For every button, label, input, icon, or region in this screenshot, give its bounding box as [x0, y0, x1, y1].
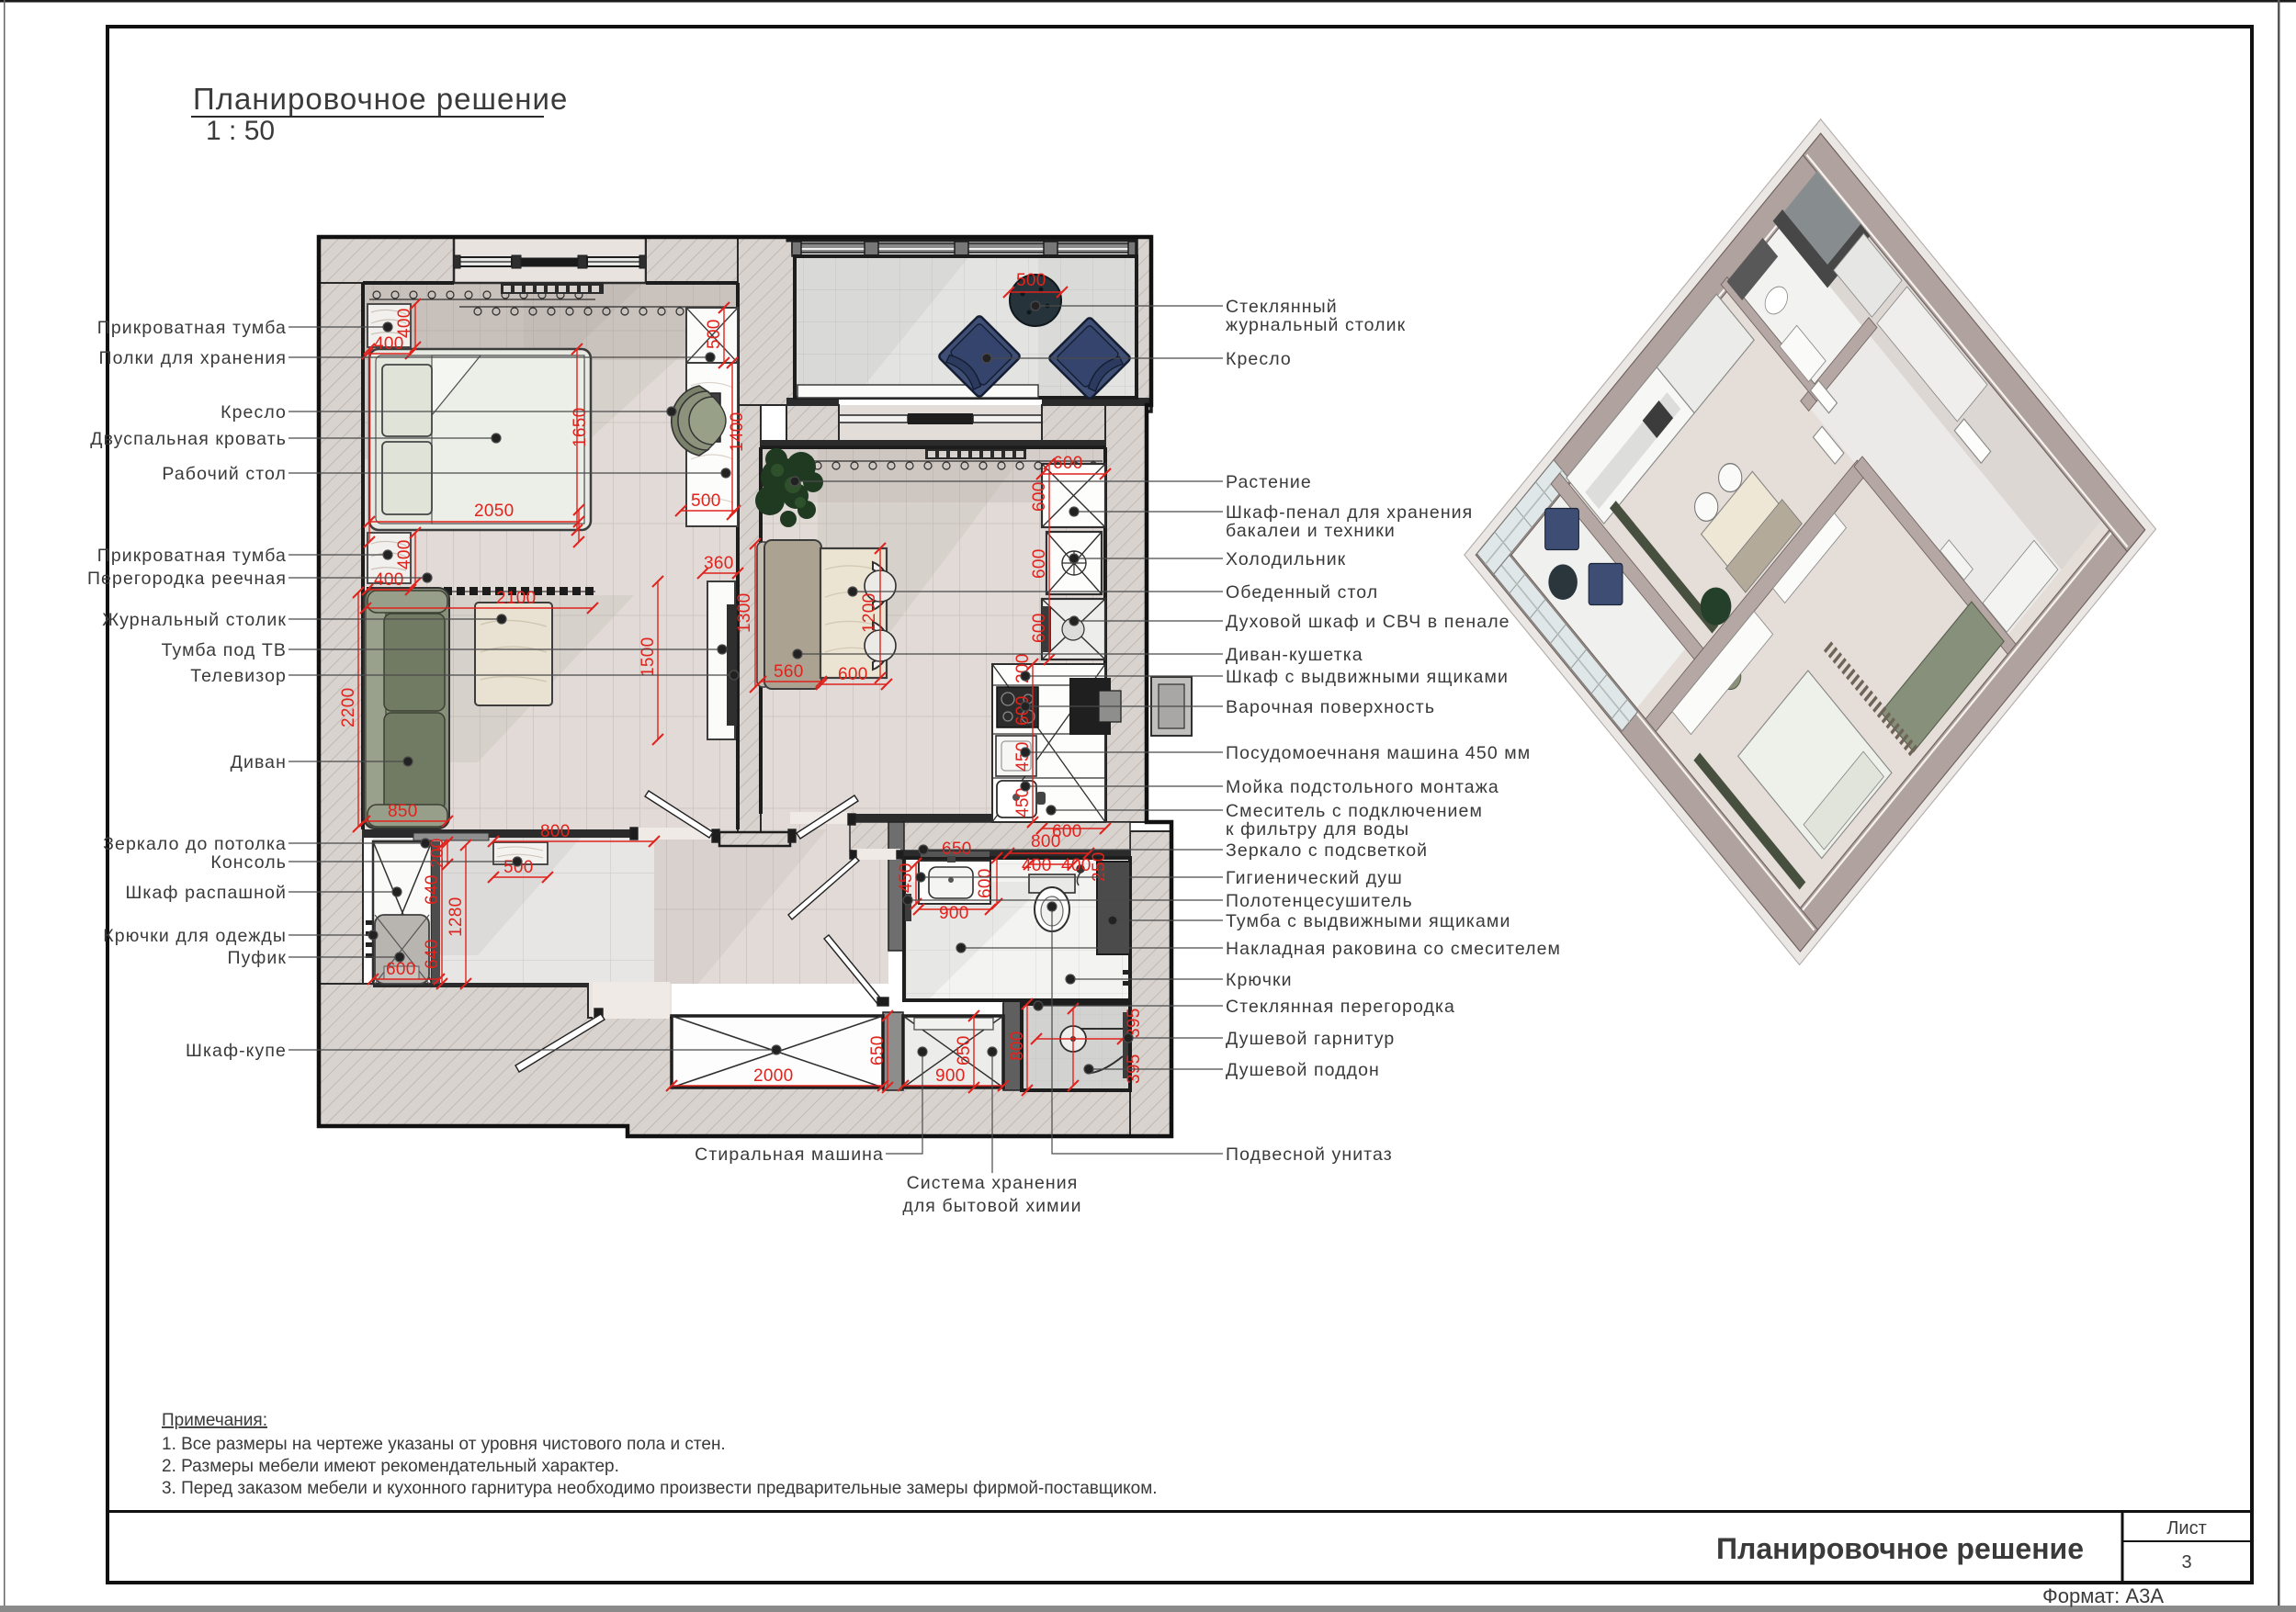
svg-text:Стеклянный: Стеклянный — [1226, 297, 1338, 317]
svg-text:600: 600 — [1030, 548, 1049, 579]
svg-text:2050: 2050 — [474, 502, 514, 521]
svg-text:Полотенцесушитель: Полотенцесушитель — [1226, 891, 1413, 911]
svg-text:1300: 1300 — [735, 593, 754, 633]
svg-text:800: 800 — [1008, 1031, 1027, 1061]
svg-text:Кресло: Кресло — [1226, 349, 1292, 369]
svg-text:600: 600 — [1030, 613, 1049, 643]
svg-text:Рабочий стол: Рабочий стол — [162, 464, 287, 484]
svg-text:Кресло: Кресло — [221, 402, 287, 423]
svg-text:2000: 2000 — [753, 1066, 793, 1086]
svg-text:для бытовой химии: для бытовой химии — [902, 1196, 1081, 1216]
svg-text:Растение: Растение — [1226, 472, 1312, 492]
svg-text:850: 850 — [388, 802, 418, 821]
svg-text:400: 400 — [374, 570, 404, 590]
svg-text:Мойка подстольного монтажа: Мойка подстольного монтажа — [1226, 777, 1499, 797]
svg-text:400: 400 — [374, 334, 404, 354]
svg-text:бакалеи и техники: бакалеи и техники — [1226, 521, 1396, 541]
svg-text:Шкаф распашной: Шкаф распашной — [125, 883, 287, 903]
svg-text:900: 900 — [939, 904, 969, 923]
svg-text:450: 450 — [897, 862, 916, 893]
svg-text:Душевой гарнитур: Душевой гарнитур — [1226, 1029, 1395, 1049]
svg-text:600: 600 — [1053, 454, 1083, 473]
svg-text:3. Перед заказом мебели и кухо: 3. Перед заказом мебели и кухонного гарн… — [162, 1479, 1158, 1498]
svg-text:Журнальный столик: Журнальный столик — [102, 610, 287, 630]
svg-text:650: 650 — [868, 1035, 888, 1065]
svg-text:Смеситель с подключением: Смеситель с подключением — [1226, 801, 1483, 821]
svg-text:Планировочное решение: Планировочное решение — [193, 82, 568, 116]
svg-text:журнальный столик: журнальный столик — [1226, 315, 1406, 335]
svg-text:2200: 2200 — [339, 688, 358, 727]
svg-text:640: 640 — [423, 939, 442, 969]
svg-text:400: 400 — [1022, 856, 1052, 875]
svg-text:Крючки для одежды: Крючки для одежды — [103, 926, 287, 946]
svg-text:Стиральная машина: Стиральная машина — [695, 1144, 884, 1165]
svg-text:Зеркало до потолка: Зеркало до потолка — [103, 834, 287, 854]
svg-text:Прикроватная тумба: Прикроватная тумба — [97, 318, 287, 338]
svg-text:Душевой поддон: Душевой поддон — [1226, 1060, 1380, 1080]
svg-text:1650: 1650 — [571, 408, 590, 447]
svg-text:1280: 1280 — [447, 897, 466, 937]
svg-text:Система хранения: Система хранения — [907, 1173, 1079, 1193]
svg-text:Шкаф-пенал для хранения: Шкаф-пенал для хранения — [1226, 502, 1473, 523]
svg-text:560: 560 — [774, 662, 804, 682]
svg-text:Гигиенический душ: Гигиенический душ — [1226, 868, 1403, 888]
svg-text:400: 400 — [1061, 856, 1091, 875]
svg-text:Тумба с выдвижными ящиками: Тумба с выдвижными ящиками — [1226, 911, 1510, 931]
svg-text:360: 360 — [704, 554, 734, 573]
svg-text:Зеркало с подсветкой: Зеркало с подсветкой — [1226, 840, 1428, 861]
svg-text:900: 900 — [935, 1066, 966, 1086]
svg-text:600: 600 — [976, 868, 995, 898]
svg-text:1 : 50: 1 : 50 — [206, 116, 275, 146]
svg-text:Накладная раковина со смесител: Накладная раковина со смесителем — [1226, 939, 1561, 959]
svg-text:600: 600 — [838, 665, 868, 684]
svg-text:Планировочное решение: Планировочное решение — [1716, 1532, 2084, 1565]
svg-text:2100: 2100 — [496, 589, 536, 608]
svg-text:600: 600 — [386, 960, 416, 979]
svg-text:600: 600 — [1030, 481, 1049, 512]
svg-text:Стеклянная перегородка: Стеклянная перегородка — [1226, 997, 1455, 1017]
svg-text:Диван-кушетка: Диван-кушетка — [1226, 645, 1363, 665]
svg-text:Двуспальная кровать: Двуспальная кровать — [90, 429, 287, 449]
svg-text:1400: 1400 — [728, 412, 747, 452]
svg-text:Пуфик: Пуфик — [227, 948, 287, 968]
svg-text:800: 800 — [1031, 832, 1061, 851]
svg-text:Обеденный стол: Обеденный стол — [1226, 582, 1378, 603]
svg-text:Крючки: Крючки — [1226, 970, 1293, 990]
svg-text:2. Размеры мебели имеют рекоме: 2. Размеры мебели имеют рекомендательный… — [162, 1457, 619, 1476]
svg-text:Тумба под ТВ: Тумба под ТВ — [162, 640, 287, 660]
svg-text:Варочная поверхность: Варочная поверхность — [1226, 697, 1435, 717]
svg-text:Шкаф-купе: Шкаф-купе — [186, 1041, 287, 1061]
svg-text:Холодильник: Холодильник — [1226, 549, 1346, 569]
svg-text:Полки для хранения: Полки для хранения — [99, 348, 287, 368]
svg-text:Шкаф с выдвижными ящиками: Шкаф с выдвижными ящиками — [1226, 667, 1509, 687]
svg-text:500: 500 — [691, 491, 721, 511]
svg-text:1200: 1200 — [860, 593, 879, 633]
svg-text:Духовой шкаф и СВЧ в пенале: Духовой шкаф и СВЧ в пенале — [1226, 612, 1510, 632]
svg-text:Лист: Лист — [2166, 1518, 2206, 1539]
svg-text:1500: 1500 — [639, 637, 658, 677]
svg-text:650: 650 — [955, 1035, 974, 1065]
svg-text:450: 450 — [1013, 787, 1033, 817]
svg-text:Примечания:: Примечания: — [162, 1411, 267, 1430]
svg-text:Формат: А3А: Формат: А3А — [2042, 1584, 2164, 1607]
svg-text:3: 3 — [2181, 1552, 2191, 1573]
svg-text:Телевизор: Телевизор — [190, 666, 287, 686]
svg-text:500: 500 — [1016, 271, 1046, 290]
svg-text:Посудомоечнаня машина 450 мм: Посудомоечнаня машина 450 мм — [1226, 743, 1531, 763]
svg-text:1. Все размеры на чертеже указ: 1. Все размеры на чертеже указаны от уро… — [162, 1435, 726, 1454]
svg-text:Подвесной унитаз: Подвесной унитаз — [1226, 1144, 1393, 1165]
svg-text:Диван: Диван — [231, 752, 287, 772]
svg-text:к фильтру для воды: к фильтру для воды — [1226, 819, 1409, 840]
svg-text:200: 200 — [428, 838, 447, 868]
svg-text:Перегородка реечная: Перегородка реечная — [87, 569, 287, 589]
svg-text:400: 400 — [395, 539, 414, 569]
svg-text:800: 800 — [540, 822, 571, 841]
svg-text:Прикроватная тумба: Прикроватная тумба — [97, 546, 287, 566]
svg-text:500: 500 — [705, 319, 724, 349]
svg-text:640: 640 — [423, 874, 442, 905]
svg-text:Консоль: Консоль — [210, 852, 287, 873]
